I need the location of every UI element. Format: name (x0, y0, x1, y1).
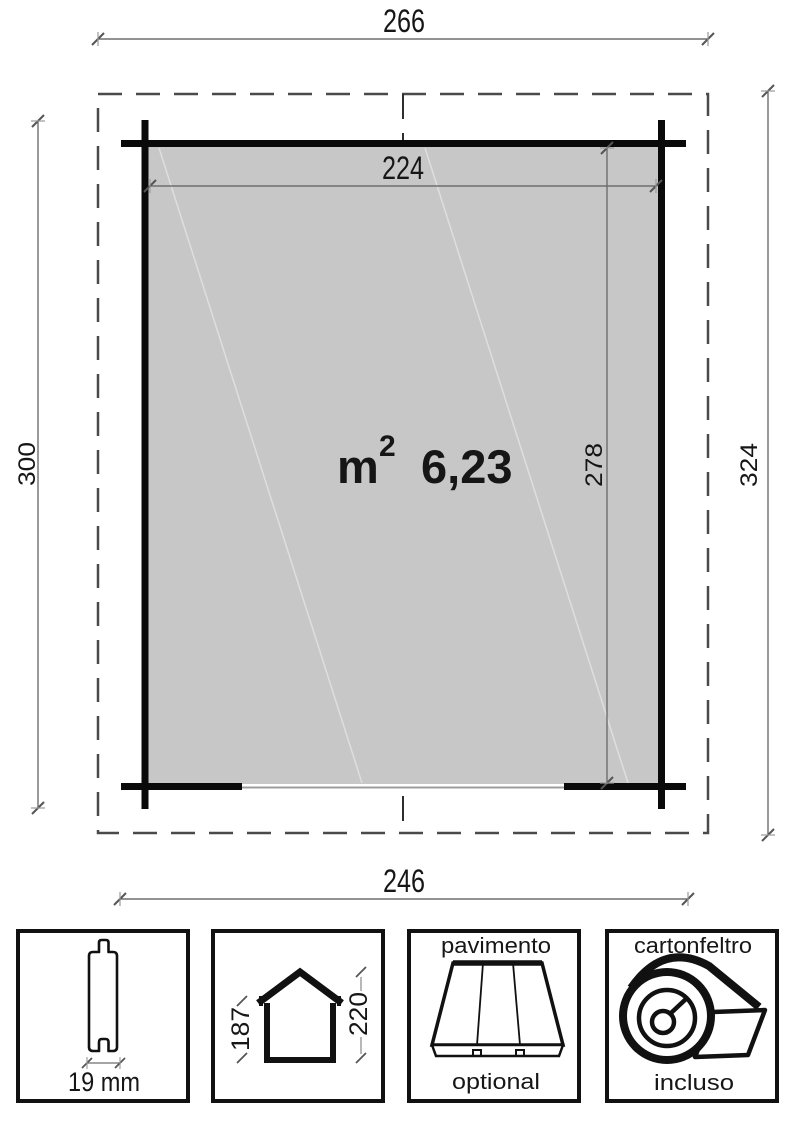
area-label: m 2 6,23 (337, 430, 512, 493)
eaves-height-label: 187 (227, 1007, 255, 1051)
house-fill (261, 972, 339, 1060)
legend-box-floor: pavimento optional (407, 929, 581, 1103)
ridge-height-label: 220 (345, 992, 373, 1036)
dim-label-side-right: 324 (736, 443, 763, 487)
legend-box-elevation: 187 220 (211, 929, 385, 1103)
felt-roll-icon: cartonfeltro incluso (609, 933, 775, 1099)
roof-felt-title: cartonfeltro (634, 933, 752, 958)
dim-label-inner-depth: 278 (581, 443, 608, 487)
floor-front-edge (432, 1045, 563, 1056)
dim-label-side-left: 300 (14, 442, 41, 486)
plank-thickness-label: 19 mm (68, 1067, 140, 1097)
area-unit: m (337, 440, 379, 493)
legend-box-roof-felt: cartonfeltro incluso (605, 929, 779, 1103)
plank-outline (89, 940, 117, 1051)
dim-label-roof-width: 266 (383, 3, 425, 39)
shed-floorplan-diagram: 266 224 246 300 324 278 m 2 6,23 19 mm (0, 0, 797, 1122)
area-exponent: 2 (379, 430, 396, 463)
legend-box-plank: 19 mm (16, 929, 190, 1103)
floor-title: pavimento (441, 933, 551, 958)
floor-availability: optional (452, 1069, 540, 1094)
floorplan-drawing: 266 224 246 300 324 278 m 2 6,23 (0, 0, 797, 915)
house-elevation-icon: 187 220 (215, 933, 381, 1099)
roll-core-circle (652, 1011, 674, 1033)
floor-panel-icon: pavimento optional (411, 933, 577, 1099)
floor-top-face (432, 963, 563, 1045)
dim-label-inner-width: 224 (382, 150, 424, 186)
roof-felt-availability: incluso (654, 1070, 734, 1095)
dim-label-base-width: 246 (383, 863, 425, 899)
area-value: 6,23 (421, 440, 512, 493)
plank-profile-icon: 19 mm (20, 933, 186, 1099)
